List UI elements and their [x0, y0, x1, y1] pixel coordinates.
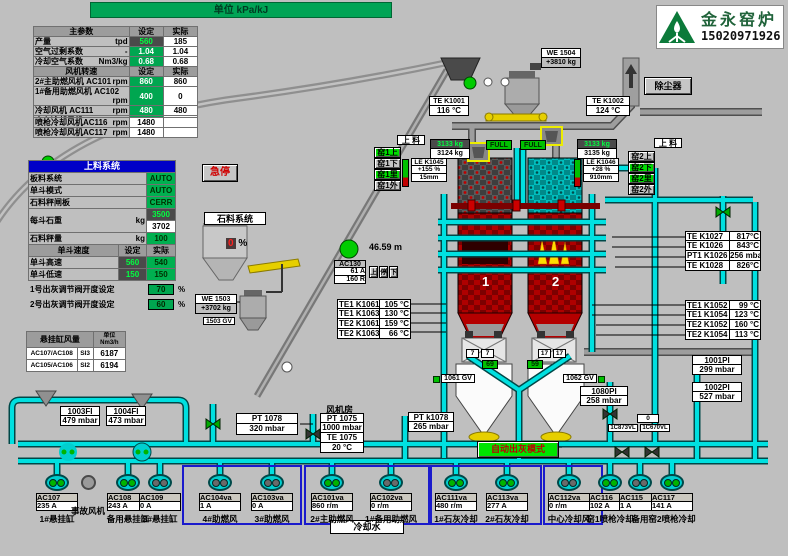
logo-triangle-icon — [657, 7, 697, 47]
row-label: 每斗石重kg — [29, 209, 147, 233]
hopper2-count-b: 17 — [553, 349, 566, 358]
table-header: 实际 — [147, 245, 176, 257]
setpoint-cell[interactable]: 860 — [129, 77, 163, 87]
fan-icon — [148, 474, 172, 491]
flow-row-tag: AC107/AC108 — [27, 348, 78, 360]
table-header: 设定 — [129, 27, 163, 37]
emergency-stop-button[interactable]: 急停 — [202, 164, 238, 182]
motor-ac112va[interactable]: AC112va0 r/m中心冷却风 — [546, 474, 592, 525]
lance-fan-table: 喷枪冷却风机AC116rpm1480 喷枪冷却风机AC117rpm1480 — [33, 117, 198, 138]
kiln2-full-indicator: FULL — [520, 140, 546, 150]
hoist-stop-button[interactable]: 停 — [379, 266, 388, 278]
actual-cell: 0 — [163, 87, 197, 106]
skip-car-icon — [340, 240, 358, 258]
mode-cell[interactable]: AUTO — [147, 185, 176, 197]
fan-icon — [557, 474, 581, 491]
mode-cell[interactable]: CERR — [147, 197, 176, 209]
pt-k1078: PT k1078265 mbar — [408, 412, 454, 432]
setpoint-cell[interactable]: 1.04 — [129, 47, 163, 57]
flow-row-tag: AC105/AC106 — [27, 360, 78, 372]
ash-valve-2-value[interactable]: 60 — [148, 299, 174, 310]
kiln2-charge-weight: 3133 kg3135 kg — [577, 139, 617, 159]
flow-row-value: 6194 — [93, 360, 125, 372]
kiln2-number: 2 — [552, 274, 559, 289]
yellow-belt — [486, 114, 546, 121]
fan-room-instruments: PT 10751000 mbarTE 107520 °C — [320, 413, 364, 453]
valve-tag-right: 1C670VL — [640, 424, 670, 432]
actual-cell: 860 — [163, 77, 197, 87]
row-label: 产量tpd — [34, 37, 130, 47]
le-k1046-level: LE K1046+28 %910mm — [583, 158, 619, 182]
kiln-shell-temps-left: TE1 K1061105 °C TE1 K1063130 °C TE2 K106… — [337, 299, 411, 339]
motor-ac104va[interactable]: AC104va1 A4#助燃风 — [197, 474, 243, 525]
setpoint-cell[interactable]: 0.68 — [129, 57, 163, 67]
te-k1002: TE K1002124 °C — [586, 96, 630, 116]
ash-valve-1-position: 69 — [482, 360, 498, 369]
actual-cell: 150 — [147, 269, 176, 281]
gv-1503[interactable]: 1503 GV — [203, 317, 235, 325]
table-header: 悬挂缸风量 — [27, 332, 94, 348]
fi-1004: 1004FI473 mbar — [106, 406, 146, 426]
kiln2-bottom-button[interactable]: 窑2下 — [628, 162, 655, 173]
actual-cell: 540 — [147, 257, 176, 269]
kiln2-outer-button[interactable]: 窑2外 — [628, 184, 655, 195]
gv-1062[interactable]: 1062 GV — [563, 374, 597, 383]
fan-icon — [660, 474, 684, 491]
cylinder-airflow-table: 悬挂缸风量单位 Nm3/h AC107/AC108SI36187 AC105/A… — [26, 331, 126, 372]
pi-1080: 1080PI258 mbar — [580, 386, 628, 406]
table-header: 实际 — [163, 27, 197, 37]
pi-1001: 1001PI299 mbar — [692, 355, 742, 375]
kiln1-outer-button[interactable]: 窑1外 — [374, 180, 401, 191]
fan-icon — [379, 474, 403, 491]
actual-cell: 185 — [163, 37, 197, 47]
table-header: 风机转速 — [34, 67, 130, 77]
fi-1003: 1003FI479 mbar — [60, 406, 100, 426]
kiln2-inner-button[interactable]: 窑2里 — [628, 173, 655, 184]
ash-valve-2-setting: 2号出灰调节阀开度设定 60 % — [30, 299, 185, 310]
kiln-top-temps: TE K1027817°C TE K1026843°C PT1 K1026256… — [685, 231, 761, 271]
ash-valve-1-value[interactable]: 70 — [148, 284, 174, 295]
row-label: 1#备用助燃风机 AC102rpm — [34, 87, 130, 106]
ash-valve-2-position: 59 — [527, 360, 543, 369]
unit-banner: 单位 kPa/kJ — [90, 2, 392, 18]
hopper2-count-a: 17 — [538, 349, 551, 358]
hopper1-count-b: 7 — [481, 349, 494, 358]
table-header: 设定 — [129, 67, 163, 77]
te-k1001: TE K1001116 °C — [429, 96, 469, 116]
level-bar-kiln1 — [402, 159, 409, 187]
flow-row-value: 6187 — [93, 348, 125, 360]
skip-height-value: 46.59 m — [369, 242, 402, 252]
kiln1-inner-button[interactable]: 窑1里 — [374, 169, 401, 180]
dust-collector-button[interactable]: 除尘器 — [644, 77, 692, 95]
check-value[interactable]: 100 — [147, 233, 176, 245]
motor-ac113va[interactable]: AC113va277 A2#石灰冷却 — [484, 474, 530, 525]
kiln1-number: 1 — [482, 274, 489, 289]
motor-ac101va[interactable]: AC101va860 r/m2#主助燃风 — [309, 474, 355, 525]
ash-valve-1-unit: % — [178, 285, 185, 294]
weight-actual: 3702 — [147, 221, 175, 232]
pi-1002: 1002PI527 mbar — [692, 382, 742, 402]
feeding-system-table: 上料系统 板料系统AUTO 单斗模式AUTO 石料秤闸板CERR 每斗石重kg … — [28, 160, 176, 281]
table-header: 主参数 — [34, 27, 130, 37]
table-header: 实际 — [163, 67, 197, 77]
company-logo: 金永窑炉 15020971926 — [656, 5, 784, 49]
table-header: 设定 — [119, 245, 147, 257]
pump-icon — [81, 475, 96, 490]
flow-row-code: SI2 — [77, 360, 93, 372]
row-label: 单斗模式 — [29, 185, 147, 197]
gv-1061[interactable]: 1061 GV — [441, 374, 475, 383]
level-bar-kiln2 — [574, 159, 581, 187]
motor-ac103va[interactable]: AC103va0 A3#助燃风 — [249, 474, 295, 525]
kiln2-top-button[interactable]: 窑2上 — [628, 151, 655, 162]
stone-system-label: 石料系统 — [204, 212, 266, 225]
ash-valve-1-setting: 1号出灰调节阀开度设定 70 % — [30, 284, 185, 295]
kiln-1-vessel — [458, 158, 512, 338]
row-label: 单斗高速 — [29, 257, 119, 269]
motor-ac102va[interactable]: AC102va0 r/m1#备用助燃风 — [368, 474, 414, 525]
row-label: 石料秤闸板 — [29, 197, 147, 209]
valve-tag-left: 1C873VL — [608, 424, 638, 432]
fan-icon — [260, 474, 284, 491]
row-label: 冷却空气系数Nm3/kg — [34, 57, 130, 67]
setpoint-cell[interactable]: 560 — [129, 37, 163, 47]
gv1062-status-icon — [598, 376, 605, 383]
value-cell: 1480 — [129, 128, 163, 138]
feed-indicator-kiln2: 上 料 — [654, 138, 682, 148]
we1504-weight: WE 1504+3810 kg — [541, 48, 581, 68]
value-cell — [163, 118, 197, 128]
row-label: 单斗低速 — [29, 269, 119, 281]
ac130-hoist-motor[interactable]: AC13061 A160 R — [334, 260, 366, 284]
company-name: 金永窑炉 — [701, 12, 780, 30]
row-label: 冷却风机 AC111rpm — [34, 106, 130, 116]
hoist-down-button[interactable]: 下 — [389, 266, 398, 278]
gv1061-status-icon — [433, 376, 440, 383]
setpoint-cell[interactable]: 560 — [119, 257, 147, 269]
stone-silo-level: 0 % — [226, 238, 247, 249]
kiln1-full-indicator: FULL — [486, 140, 512, 150]
kiln1-top-button[interactable]: 窑1上 — [374, 147, 401, 158]
kiln1-bottom-button[interactable]: 窑1下 — [374, 158, 401, 169]
table-header: 单位 Nm3/h — [93, 332, 125, 348]
weigh-hopper — [505, 78, 539, 104]
auto-ash-mode-button[interactable]: 自动出灰模式 — [477, 441, 559, 458]
row-label: 2#主助燃风机 AC101rpm — [34, 77, 130, 87]
main-parameter-table: 主参数设定实际 产量tpd560185 空气过剩系数-1.041.04 冷却空气… — [33, 26, 198, 126]
ash-valve-2-unit: % — [178, 300, 185, 309]
actual-cell: 1.04 — [163, 47, 197, 57]
setpoint-cell[interactable]: 480 — [129, 106, 163, 116]
motor-ac111va[interactable]: AC111va480 r/m1#石灰冷却 — [433, 474, 479, 525]
motor-ac109[interactable]: AC1090 A3#悬挂缸 — [137, 474, 183, 525]
we1503-weight: WE 1503+3702 kg — [195, 294, 237, 314]
flow-row-code: SI3 — [77, 348, 93, 360]
fan-icon — [444, 474, 468, 491]
feeding-table-title: 上料系统 — [29, 161, 176, 173]
value-cell — [163, 128, 197, 138]
weight-setpoint[interactable]: 3500 — [147, 209, 175, 221]
row-label: 石料秤量kg — [29, 233, 147, 245]
hoist-up-button[interactable]: 上 — [369, 266, 378, 278]
ash-valve-1-label: 1号出灰调节阀开度设定 — [30, 284, 144, 295]
row-label: 喷枪冷却风机AC116rpm — [34, 118, 130, 128]
setpoint-cell[interactable]: 150 — [119, 269, 147, 281]
feed-indicator-kiln1: 上 料 — [397, 135, 425, 145]
fan-icon — [320, 474, 344, 491]
pt-1078-left: PT 1078320 mbar — [236, 413, 298, 435]
actual-cell: 0.68 — [163, 57, 197, 67]
kiln1-charge-weight: 3133 kg3124 kg — [430, 139, 470, 159]
weight-values: 3500 3702 — [147, 209, 176, 233]
row-label: 空气过剩系数- — [34, 47, 130, 57]
setpoint-cell[interactable]: 400 — [129, 87, 163, 106]
ash-valve-2-label: 2号出灰调节阀开度设定 — [30, 299, 144, 310]
zero-indicator: 0 — [637, 414, 659, 423]
hopper1-count-a: 7 — [466, 349, 479, 358]
hmi-screen: 单位 kPa/kJ 金永窑炉 15020971926 主参数设定实际 产量tpd… — [0, 0, 788, 556]
company-phone: 15020971926 — [701, 30, 780, 43]
fan-icon — [495, 474, 519, 491]
row-label: 板料系统 — [29, 173, 147, 185]
le-k1045-level: LE K1045+155 %15mm — [411, 158, 447, 182]
value-cell: 1480 — [129, 118, 163, 128]
kiln-shell-temps-right: TE1 K105299 °C TE1 K1054123 °C TE2 K1052… — [685, 300, 761, 340]
actual-cell: 480 — [163, 106, 197, 116]
mode-cell[interactable]: AUTO — [147, 173, 176, 185]
row-label: 喷枪冷却风机AC117rpm — [34, 128, 130, 138]
fan-icon — [208, 474, 232, 491]
table-header: 单斗速度 — [29, 245, 119, 257]
motor-ac117[interactable]: AC117141 A窑2喷枪冷却 — [649, 474, 695, 525]
